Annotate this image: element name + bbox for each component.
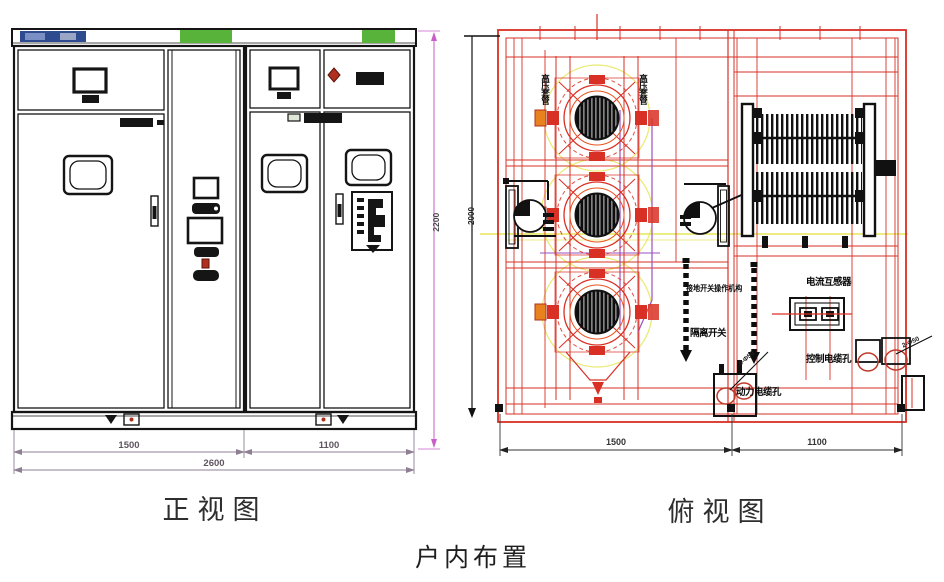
linework-svg [0, 0, 944, 582]
front-height-dim: 2200 [432, 200, 441, 244]
mechanism-stack [188, 178, 222, 281]
ground-arrow-icon [337, 415, 349, 424]
vent-slot [304, 113, 342, 123]
control-cable-hole-label: 控制电缆孔 [806, 355, 851, 365]
nameplate [20, 31, 86, 42]
overall-caption: 户内布置 [398, 546, 548, 571]
green-strip-left [180, 30, 232, 43]
terminal-stub [876, 160, 896, 176]
front-view-linework [12, 29, 416, 429]
drawing-canvas: 2200 1500 1100 2600 2000 1500 1100 高压套管 … [0, 0, 944, 582]
mechanism-column [168, 50, 240, 408]
control-cable-holes [856, 336, 932, 410]
front-left-width-dim: 1500 [94, 441, 164, 451]
bushing-label-right: 高压套管 [639, 74, 648, 140]
front-right-width-dim: 1100 [294, 441, 364, 451]
top-view-caption: 俯视图 [655, 499, 785, 526]
cable-funnel [566, 352, 630, 403]
operating-device-left [503, 178, 556, 248]
left-cabinet [14, 46, 244, 412]
inspection-window [262, 155, 307, 192]
inspection-window [346, 150, 391, 185]
top-depth-dim: 2000 [468, 194, 476, 238]
cabinet-base [12, 412, 416, 429]
front-total-width-dim: 2600 [179, 459, 249, 469]
ground-arrow-icon [105, 415, 117, 424]
left-door [18, 114, 164, 408]
bushing-label-left: 高压套管 [541, 74, 550, 140]
indicator-diamond-icon [328, 68, 340, 82]
right-door-b [324, 112, 410, 408]
dim-anchor-marks [495, 404, 905, 412]
current-transformer-label: 电流互感器 [806, 278, 851, 288]
top-left-width-dim: 1500 [584, 438, 648, 447]
top-right-width-dim: 1100 [785, 438, 849, 447]
small-vent [288, 114, 300, 121]
disconnector-label: 隔离开关 [690, 329, 726, 339]
vent-slot [120, 118, 153, 127]
right-cabinet [246, 46, 414, 412]
inspection-window [64, 156, 112, 194]
earthing-switch-mechanism-label: 接地开关操作机构 [686, 285, 742, 293]
front-view-caption: 正视图 [150, 497, 280, 524]
display-screen-icon [74, 69, 106, 103]
mimic-diagram-plate [352, 192, 392, 253]
busbar-drop-left [680, 258, 692, 362]
current-transformer-box [772, 298, 852, 330]
green-strip-right [362, 30, 395, 43]
right-instrument-panel-a [250, 50, 320, 108]
door-handle [336, 194, 343, 224]
right-door-a [250, 112, 320, 408]
display-screen-icon [270, 68, 298, 99]
label-plate [356, 72, 384, 85]
busbar-drop-right [748, 262, 760, 364]
power-cable-hole-label: 动力电缆孔 [736, 388, 781, 398]
resistor-bank [742, 104, 896, 248]
door-handle [151, 196, 158, 226]
